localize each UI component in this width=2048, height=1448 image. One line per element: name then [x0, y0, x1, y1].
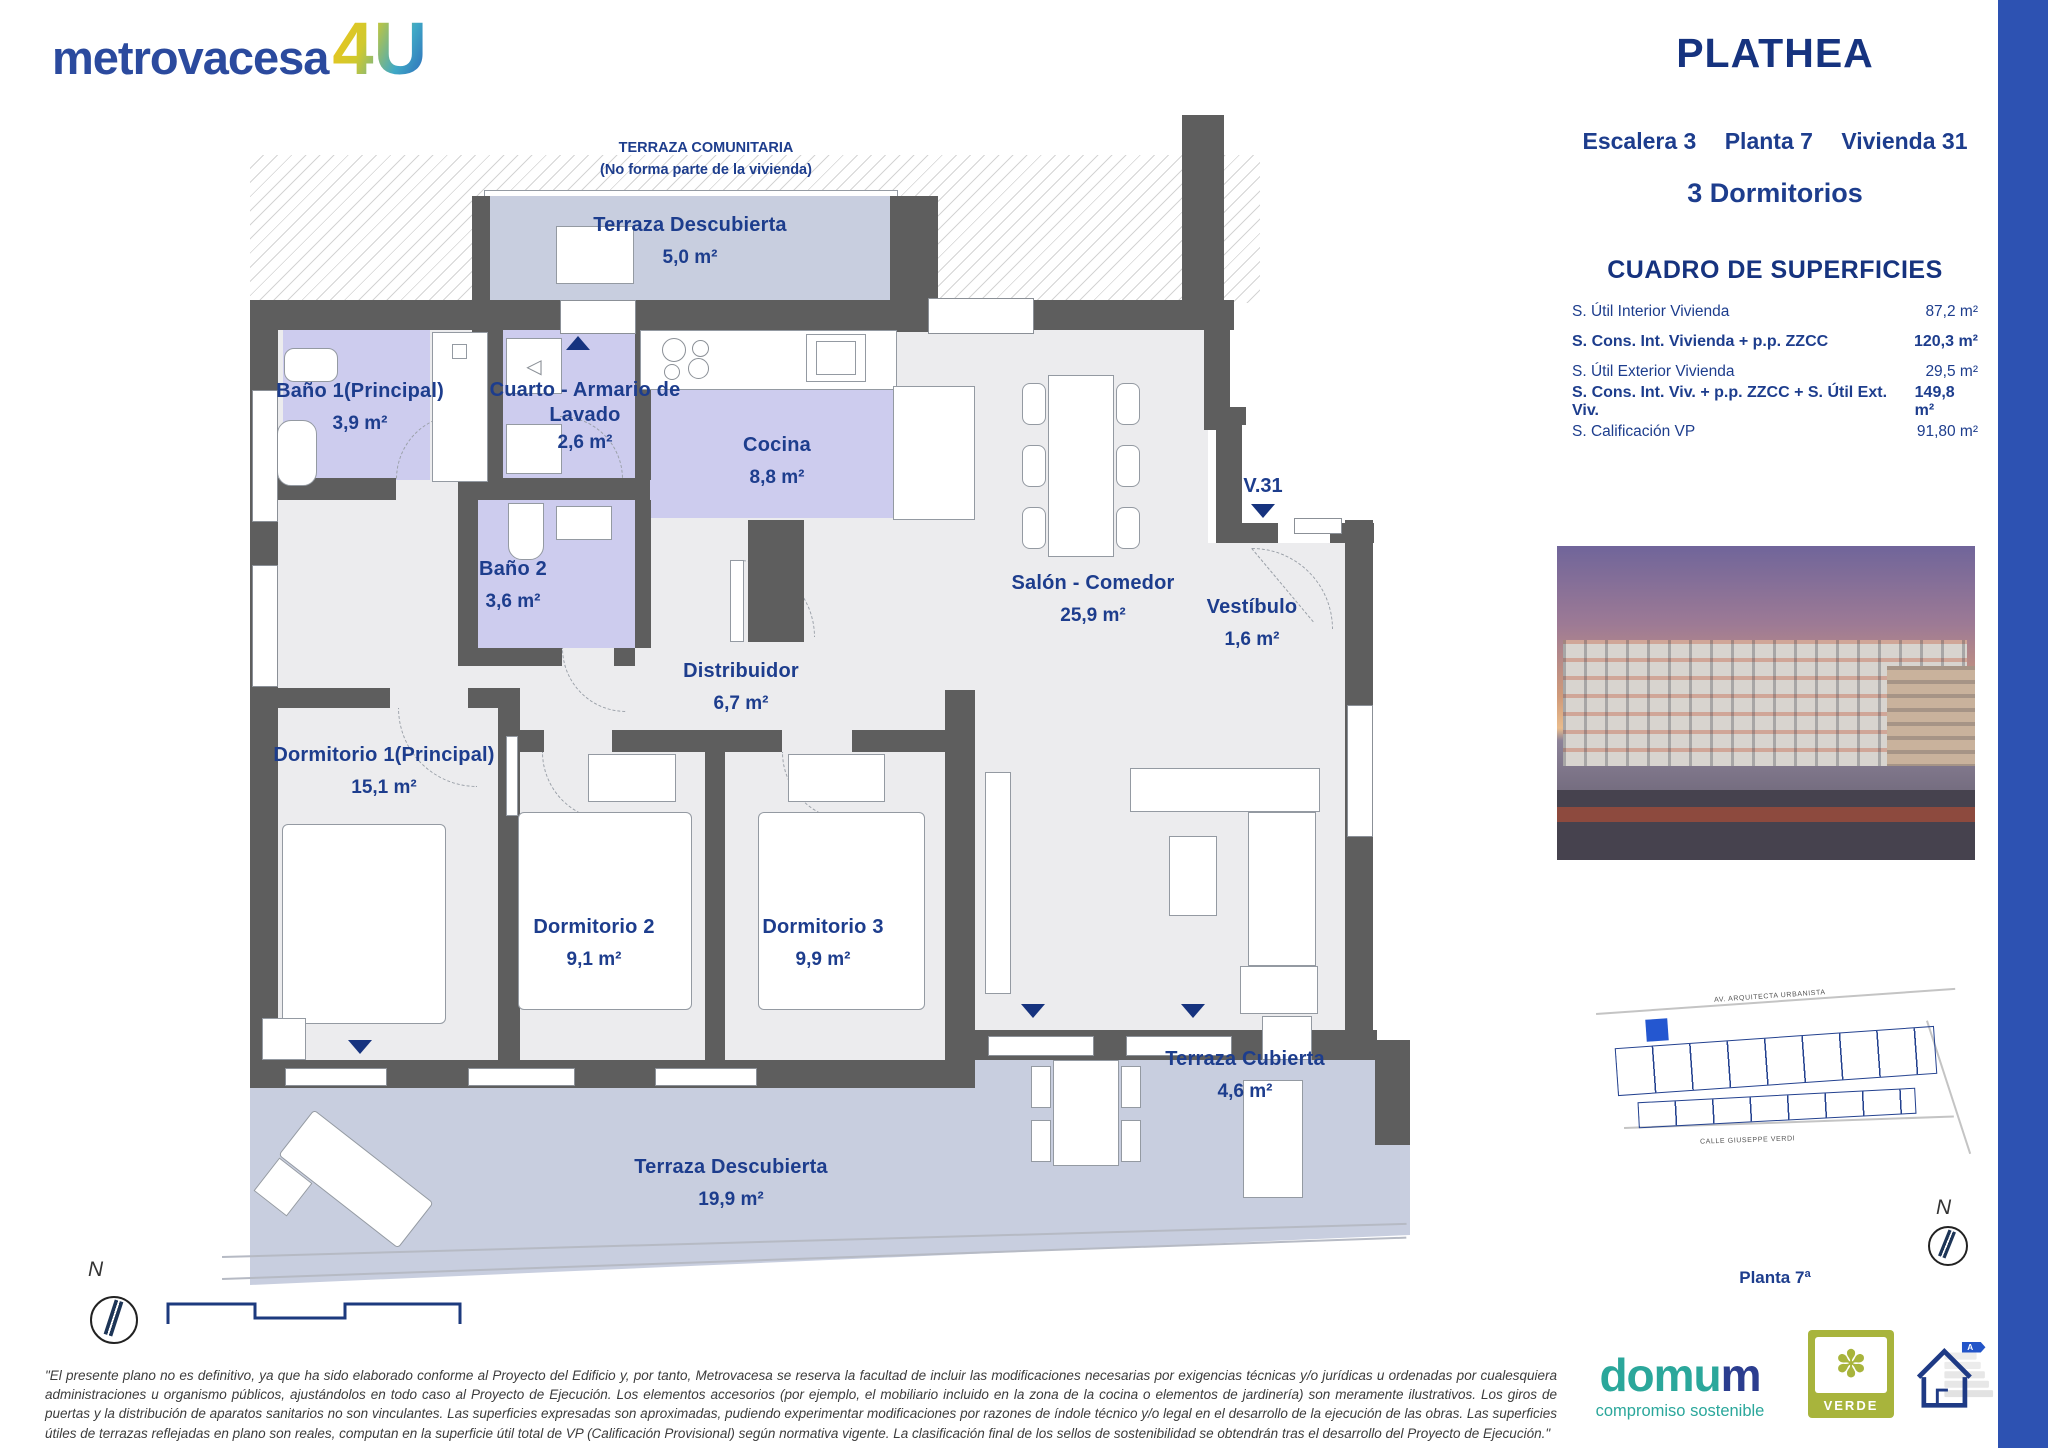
room-label-dormitorio3: Dormitorio 3 9,9 m²	[762, 916, 883, 971]
escalera-label: Escalera 3	[1583, 128, 1697, 154]
chair	[1022, 383, 1046, 425]
coffee-table	[1169, 836, 1217, 916]
wall	[705, 752, 725, 1062]
wall	[852, 730, 947, 752]
room-label-terraza-descubierta: Terraza Descubierta 19,9 m²	[634, 1156, 828, 1211]
window-marker-icon	[1181, 1004, 1205, 1018]
room-label-dormitorio1: Dormitorio 1(Principal) 15,1 m²	[273, 744, 494, 799]
room-label-cocina: Cocina 8,8 m²	[743, 434, 811, 489]
building-silhouette	[1887, 666, 1975, 766]
outdoor-chair	[1031, 1066, 1051, 1108]
wall	[635, 500, 651, 648]
planta-label: Planta 7	[1725, 128, 1813, 154]
wall	[250, 300, 1190, 330]
unit-location: Escalera 3 Planta 7 Vivienda 31	[1565, 128, 1985, 155]
table-row: S. Útil Exterior Vivienda29,5 m²	[1572, 357, 1978, 387]
sofa	[1130, 768, 1320, 812]
svg-text:A: A	[1967, 1343, 1973, 1352]
window	[1347, 705, 1373, 837]
metrovacesa-logo: metrovacesa 4U	[52, 18, 427, 81]
communal-terrace-label: TERRAZA COMUNITARIA (No forma parte de l…	[600, 138, 812, 182]
table-row: S. Calificación VP91,80 m²	[1572, 417, 1978, 447]
table-row: S. Útil Interior Vivienda87,2 m²	[1572, 297, 1978, 327]
chair	[1022, 445, 1046, 487]
wardrobe	[588, 754, 676, 802]
chair	[1022, 507, 1046, 549]
surfaces-table-title: CUADRO DE SUPERFICIES	[1565, 256, 1985, 285]
logo-4u-mark: 4U	[332, 18, 427, 81]
kitchen-peninsula	[893, 386, 975, 520]
page-title: PLATHEA	[1565, 30, 1985, 77]
bed	[282, 824, 446, 1024]
table-row: S. Cons. Int. Viv. + p.p. ZZCC + S. Útil…	[1572, 387, 1978, 417]
scale-bar	[160, 1294, 472, 1332]
verde-certification-badge: ✽ VERDE	[1808, 1330, 1894, 1418]
door-leaf	[730, 560, 744, 642]
room-label-terraza-top: Terraza Descubierta 5,0 m²	[593, 214, 787, 269]
room-label-dormitorio2: Dormitorio 2 9,1 m²	[533, 916, 654, 971]
entry-marker-icon	[1251, 504, 1275, 518]
legal-disclaimer: "El presente plano no es definitivo, ya …	[45, 1366, 1557, 1444]
wall	[250, 688, 390, 708]
room-label-lavado: Cuarto - Armario de Lavado 2,6 m²	[478, 378, 693, 454]
outdoor-chair	[1031, 1120, 1051, 1162]
site-plan-map: AV. ARQUITECTA URBANISTA CALLE GIUSEPPE …	[1596, 985, 1954, 1185]
wall	[1190, 300, 1234, 330]
entry-door-leaf	[1294, 518, 1342, 534]
surfaces-table: S. Útil Interior Vivienda87,2 m² S. Cons…	[1572, 297, 1978, 447]
north-label: N	[1936, 1196, 1951, 1220]
wall-shaft	[1182, 115, 1224, 330]
chair	[1116, 507, 1140, 549]
vent-marker-icon	[566, 336, 590, 350]
room-label-salon: Salón - Comedor 25,9 m²	[1011, 572, 1174, 627]
window	[252, 390, 278, 522]
chair	[1116, 383, 1140, 425]
kitchen-window	[928, 298, 1034, 334]
wall	[1204, 407, 1246, 425]
window	[252, 565, 278, 687]
domum-logo: domum compromiso sostenible	[1565, 1352, 1795, 1421]
wall	[1375, 1040, 1410, 1145]
tv-unit	[985, 772, 1011, 994]
entry-code-label: V.31	[1243, 475, 1282, 498]
street-label: CALLE GIUSEPPE VERDI	[1700, 1135, 1795, 1145]
room-label-terraza-cubierta: Terraza Cubierta 4,6 m²	[1165, 1048, 1325, 1103]
wall	[945, 690, 975, 1062]
wall	[1216, 523, 1278, 543]
unit-location-marker	[1645, 1018, 1668, 1041]
wall	[458, 500, 478, 650]
vivienda-label: Vivienda 31	[1841, 128, 1967, 154]
stove-burner	[662, 338, 686, 362]
wardrobe	[788, 754, 885, 802]
window	[655, 1068, 757, 1086]
outdoor-chair	[1121, 1066, 1141, 1108]
logo-wordmark: metrovacesa	[52, 34, 328, 81]
toilet	[508, 503, 544, 560]
room-label-distribuidor: Distribuidor 6,7 m²	[683, 660, 799, 715]
bed	[518, 812, 692, 1010]
wall	[612, 730, 782, 752]
right-accent-bar	[1998, 0, 2048, 1448]
floor-plan-sheet: metrovacesa 4U PLATHEA Escalera 3 Planta…	[0, 0, 2048, 1448]
stove-burner	[688, 358, 709, 379]
room-label-vestibulo: Vestíbulo 1,6 m²	[1207, 596, 1298, 651]
chair	[1116, 445, 1140, 487]
window	[285, 1068, 387, 1086]
terrace-door	[560, 300, 636, 334]
verde-leaf-icon: ✽	[1815, 1337, 1887, 1393]
sofa-chaise	[1240, 966, 1318, 1014]
sofa	[1248, 812, 1316, 966]
nightstand	[262, 1018, 306, 1060]
building-photo	[1557, 546, 1975, 860]
floor-caption: Planta 7ª	[1565, 1268, 1985, 1288]
energy-rating-house-icon: A	[1908, 1316, 1996, 1436]
table-row: S. Cons. Int. Vivienda + p.p. ZZCC120,3 …	[1572, 327, 1978, 357]
sink-basin	[816, 341, 856, 375]
door-leaf	[506, 736, 518, 816]
window	[988, 1036, 1094, 1056]
photo-road	[1557, 807, 1975, 822]
window	[468, 1068, 575, 1086]
drain-symbol	[452, 344, 467, 359]
stove-burner	[692, 340, 709, 357]
outdoor-table	[1053, 1060, 1119, 1166]
wall	[472, 196, 490, 332]
toilet	[284, 348, 338, 382]
dining-table	[1048, 375, 1114, 557]
wall	[614, 648, 635, 666]
domum-tagline: compromiso sostenible	[1565, 1402, 1795, 1421]
north-label: N	[88, 1258, 103, 1282]
wall	[458, 648, 562, 666]
room-label-bano1: Baño 1(Principal) 3,9 m²	[276, 380, 444, 435]
washbasin	[556, 506, 612, 540]
typology-label: 3 Dormitorios	[1565, 178, 1985, 209]
window-marker-icon	[348, 1040, 372, 1054]
room-label-bano2: Baño 2 3,6 m²	[479, 558, 547, 613]
bed	[758, 812, 925, 1010]
wall	[520, 730, 544, 752]
photo-ground	[1557, 790, 1975, 860]
window-marker-icon	[1021, 1004, 1045, 1018]
outdoor-chair	[1121, 1120, 1141, 1162]
wall	[748, 520, 804, 642]
